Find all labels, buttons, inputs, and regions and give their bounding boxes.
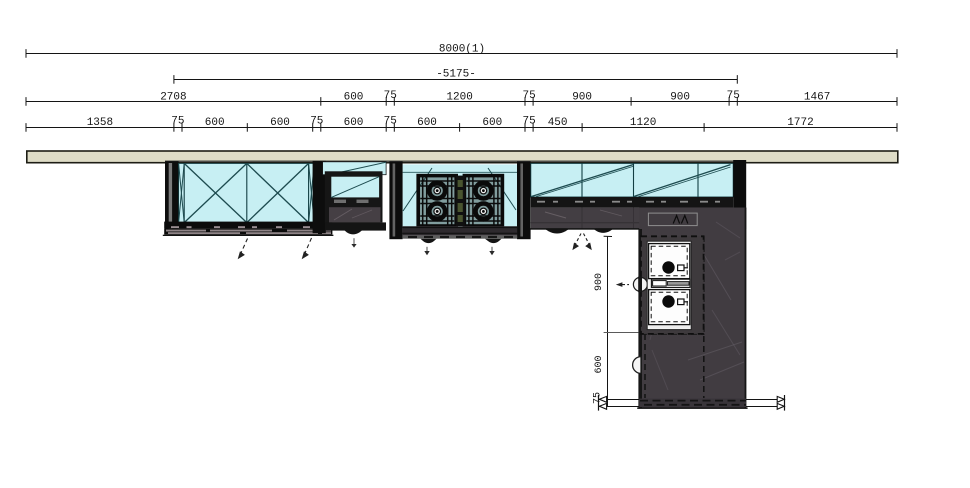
svg-text:600: 600 xyxy=(344,92,364,104)
svg-text:600: 600 xyxy=(270,117,290,129)
svg-text:1772: 1772 xyxy=(787,117,813,129)
svg-text:-5175-: -5175- xyxy=(436,69,476,81)
svg-text:1200: 1200 xyxy=(446,92,472,104)
svg-text:900: 900 xyxy=(572,92,592,104)
svg-text:8000(1): 8000(1) xyxy=(439,44,485,56)
svg-text:600: 600 xyxy=(417,117,437,129)
svg-text:600: 600 xyxy=(482,117,502,129)
svg-text:450: 450 xyxy=(548,117,568,129)
svg-text:1120: 1120 xyxy=(630,117,656,129)
svg-text:600: 600 xyxy=(344,117,364,129)
svg-text:1467: 1467 xyxy=(804,92,830,104)
svg-text:75: 75 xyxy=(727,90,740,102)
svg-text:900: 900 xyxy=(594,273,605,291)
svg-text:600: 600 xyxy=(205,117,225,129)
svg-text:75: 75 xyxy=(384,90,397,102)
svg-text:75: 75 xyxy=(310,115,323,127)
svg-text:600: 600 xyxy=(594,355,605,373)
svg-text:900: 900 xyxy=(670,92,690,104)
svg-text:75: 75 xyxy=(384,115,397,127)
svg-text:2708: 2708 xyxy=(160,92,186,104)
svg-text:75: 75 xyxy=(522,115,535,127)
svg-text:1358: 1358 xyxy=(87,117,113,129)
svg-text:75: 75 xyxy=(522,90,535,102)
svg-text:75: 75 xyxy=(171,115,184,127)
